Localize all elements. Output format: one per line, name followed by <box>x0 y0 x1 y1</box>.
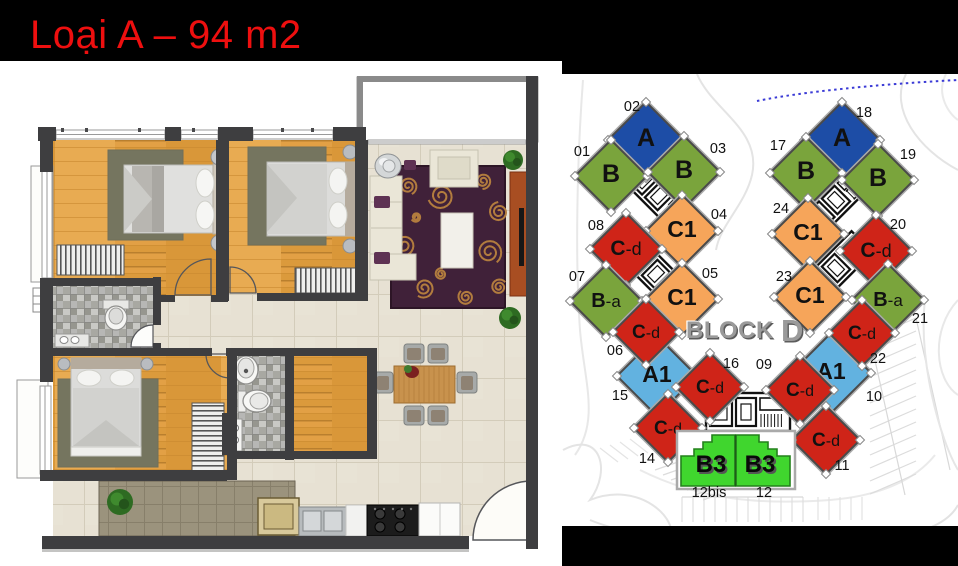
svg-text:19: 19 <box>900 147 916 163</box>
svg-text:20: 20 <box>890 217 906 233</box>
svg-text:16: 16 <box>723 356 739 372</box>
svg-text:C-d: C-d <box>848 323 876 344</box>
svg-text:C-d: C-d <box>786 380 814 401</box>
svg-text:11: 11 <box>834 458 849 474</box>
svg-text:12bis: 12bis <box>692 485 727 501</box>
svg-text:24: 24 <box>773 201 789 217</box>
svg-text:B: B <box>797 157 815 185</box>
svg-text:01: 01 <box>574 144 590 160</box>
svg-text:Loại A – 94 m2: Loại A – 94 m2 <box>30 13 302 57</box>
svg-text:15: 15 <box>612 388 628 404</box>
svg-text:C-d: C-d <box>632 322 660 343</box>
svg-text:10: 10 <box>866 389 882 405</box>
svg-text:17: 17 <box>770 138 786 154</box>
svg-text:B: B <box>602 160 620 188</box>
svg-text:C-d: C-d <box>812 430 840 451</box>
svg-text:A: A <box>637 124 655 152</box>
svg-text:22: 22 <box>870 351 886 367</box>
svg-text:B3: B3 <box>696 451 727 478</box>
svg-text:05: 05 <box>702 266 718 282</box>
svg-text:B-a: B-a <box>873 289 903 311</box>
svg-text:B: B <box>675 156 693 184</box>
svg-text:03: 03 <box>710 141 726 157</box>
svg-text:23: 23 <box>776 269 792 285</box>
svg-text:A: A <box>833 124 851 152</box>
svg-text:C1: C1 <box>795 282 825 308</box>
svg-text:C-d: C-d <box>860 239 891 262</box>
svg-text:C-d: C-d <box>610 237 641 260</box>
svg-text:C1: C1 <box>793 219 823 245</box>
svg-text:08: 08 <box>588 218 604 234</box>
svg-text:D: D <box>781 313 803 348</box>
svg-text:B: B <box>869 164 887 192</box>
svg-text:04: 04 <box>711 207 727 223</box>
svg-text:21: 21 <box>912 311 928 327</box>
svg-text:12: 12 <box>756 485 772 501</box>
svg-text:14: 14 <box>639 451 655 467</box>
svg-text:09: 09 <box>756 357 772 373</box>
svg-text:18: 18 <box>856 105 872 121</box>
svg-text:B3: B3 <box>745 451 776 478</box>
svg-text:C1: C1 <box>667 284 697 310</box>
svg-text:B-a: B-a <box>591 290 621 312</box>
svg-text:06: 06 <box>607 343 623 359</box>
svg-text:C1: C1 <box>667 216 697 242</box>
svg-text:07: 07 <box>569 269 585 285</box>
svg-text:C-d: C-d <box>696 377 724 398</box>
svg-text:02: 02 <box>624 99 640 115</box>
svg-text:BLOCK: BLOCK <box>686 317 774 344</box>
